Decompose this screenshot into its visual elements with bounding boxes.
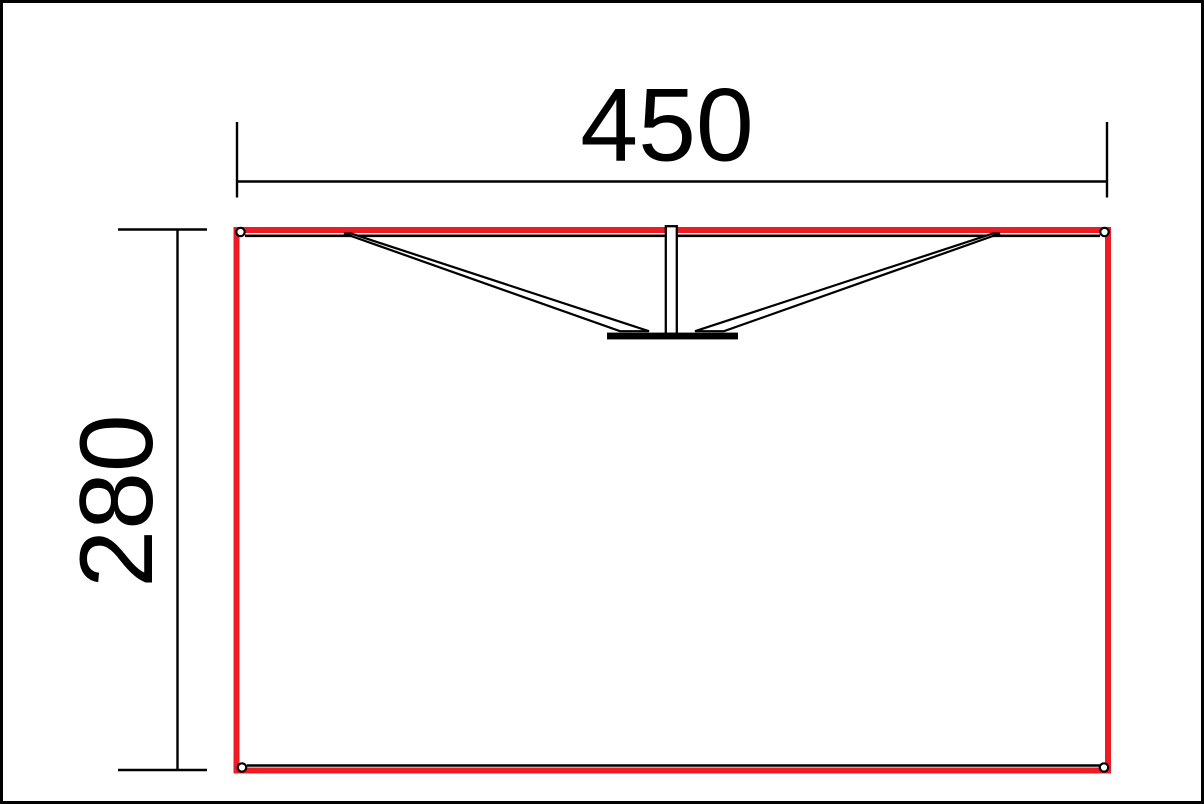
corner-fixing-top-left [236, 228, 244, 236]
height-dimension-label: 280 [59, 414, 175, 588]
corner-fixing-bottom-left [238, 763, 246, 771]
corner-fixing-bottom-right [1100, 763, 1108, 771]
corner-fixing-top-right [1100, 228, 1108, 236]
center-post [666, 226, 677, 334]
technical-drawing: 450 280 [0, 0, 1204, 804]
drawing-canvas: 450 280 [0, 0, 1204, 804]
width-dimension-label: 450 [580, 68, 754, 184]
